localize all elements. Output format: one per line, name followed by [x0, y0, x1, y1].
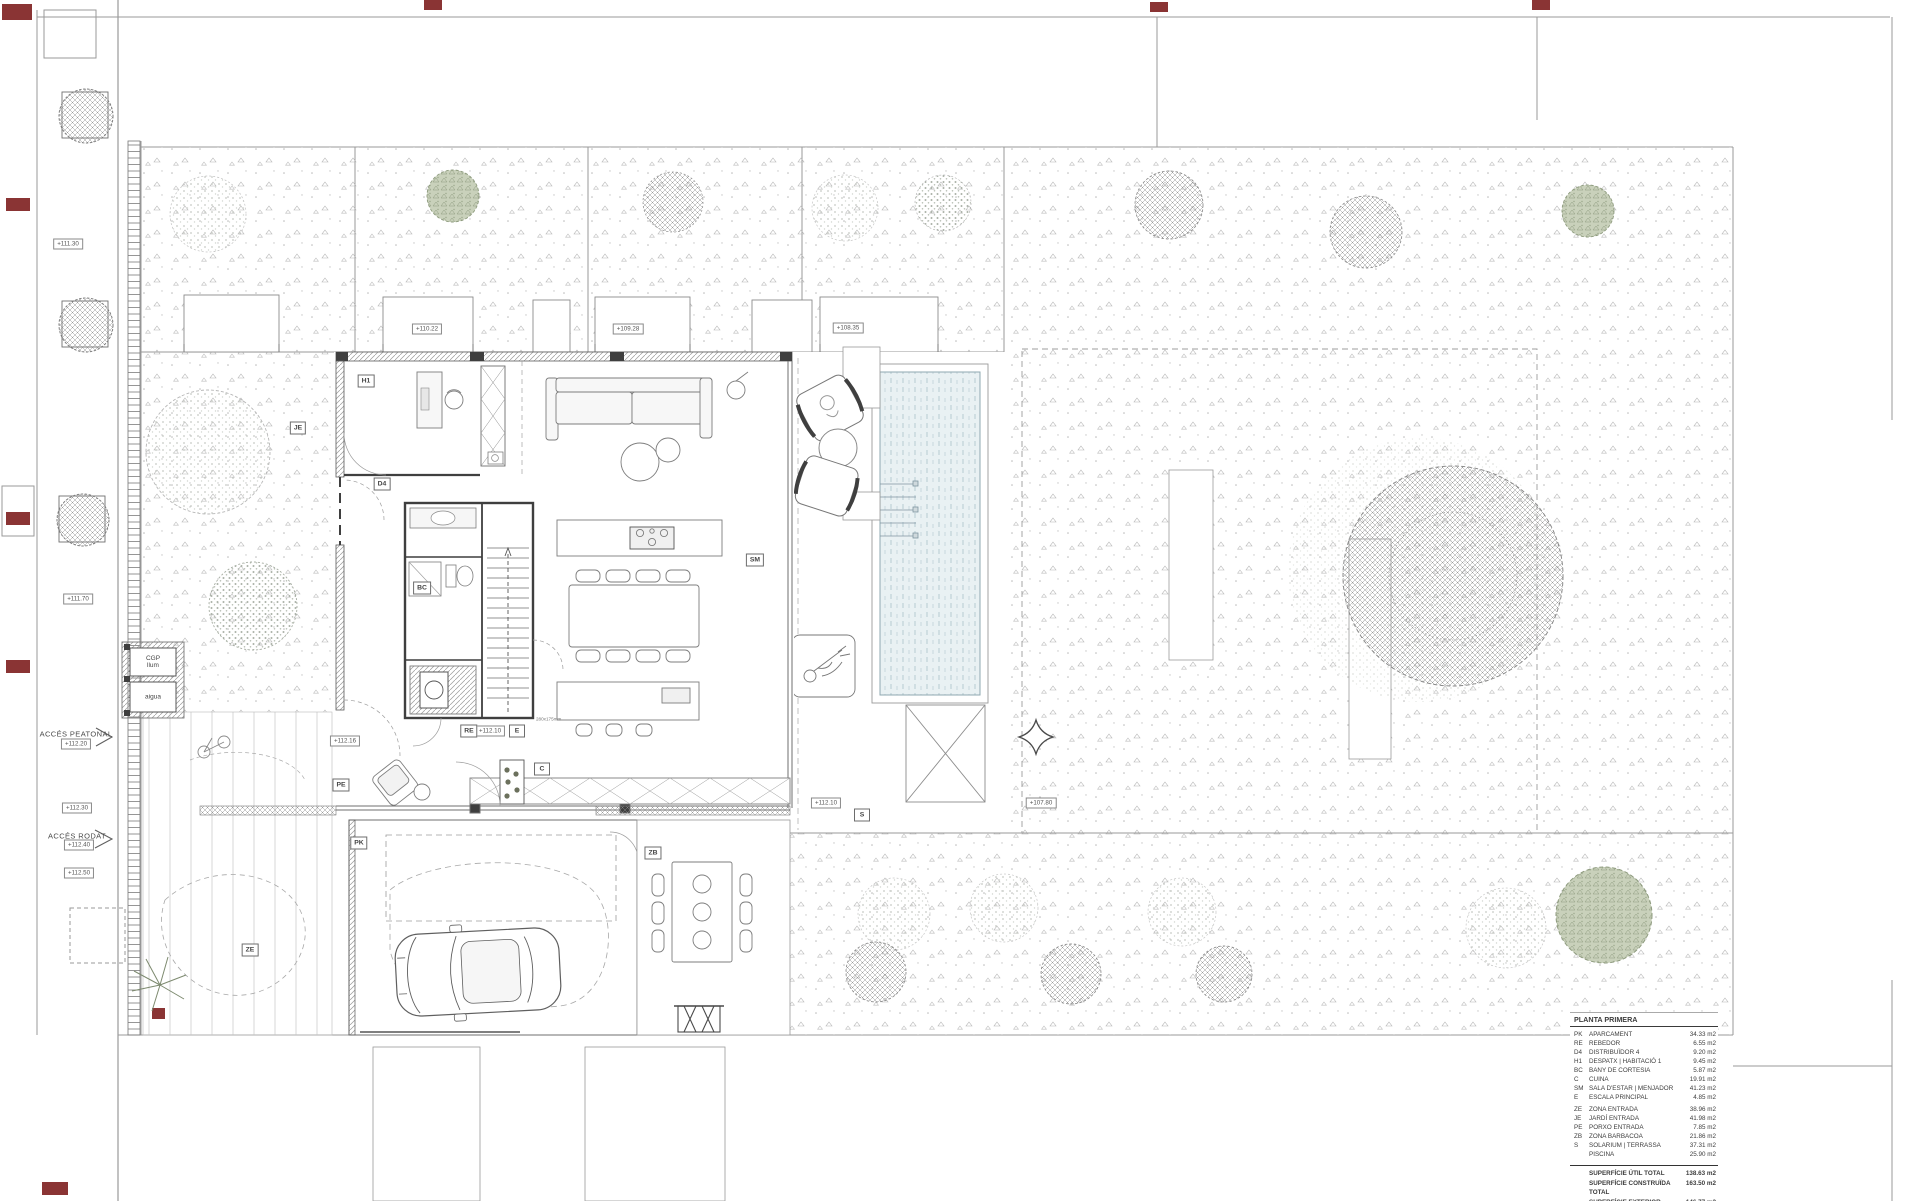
legend-row: JEJARDÍ ENTRADA41.98 m2: [1574, 1114, 1716, 1123]
legend-row: ZEZONA ENTRADA38.96 m2: [1574, 1105, 1716, 1114]
legend-group: PKAPARCAMENT34.33 m2REREBEDOR6.55 m2D4DI…: [1570, 1027, 1718, 1102]
access-arrows: [95, 728, 112, 848]
pool: [872, 364, 988, 703]
utility-boxes: [122, 642, 184, 718]
legend-row: H1DESPATX | HABITACIÓ 19.45 m2: [1574, 1057, 1716, 1066]
legend-row: BCBANY DE CORTESIA5.87 m2: [1574, 1066, 1716, 1075]
tree-icon: [170, 176, 246, 252]
tree-icon: [970, 874, 1038, 942]
pedestrian-access-arrow: [96, 728, 112, 746]
car-icon: [394, 920, 563, 1024]
road-access-arrow: [95, 830, 112, 848]
sunbather-icon: [792, 635, 855, 697]
garage: [349, 820, 638, 1035]
property-wall: [128, 141, 140, 1035]
legend-row: CCUINA19.91 m2: [1574, 1075, 1716, 1084]
barbecue-icon: [674, 1006, 724, 1032]
tree-icon: [1562, 185, 1614, 237]
tree-icon: [1466, 888, 1546, 968]
tree-icon: [1196, 946, 1252, 1002]
legend-row: REREBEDOR6.55 m2: [1574, 1039, 1716, 1048]
legend-row: SMSALA D'ESTAR | MENJADOR41.23 m2: [1574, 1084, 1716, 1093]
legend-row: SUPERFÍCIE ÚTIL TOTAL138.63 m2: [1574, 1169, 1716, 1179]
outdoor-dining: [637, 820, 790, 1035]
tree-icon: [915, 175, 971, 231]
legend-row: ZBZONA BARBACOA21.86 m2: [1574, 1132, 1716, 1141]
tree-icon: [858, 878, 930, 950]
legend-title: PLANTA PRIMERA: [1570, 1012, 1718, 1027]
tree-icon: [1041, 944, 1101, 1004]
legend-row: EESCALA PRINCIPAL4.85 m2: [1574, 1093, 1716, 1102]
legend-totals: SUPERFÍCIE ÚTIL TOTAL138.63 m2SUPERFÍCIE…: [1570, 1165, 1718, 1201]
street-tree-icon: [57, 89, 113, 546]
floor-plan-sheet: ACCÉS PEATONAL ACCÉS RODAT CGPllum aigua…: [0, 0, 1920, 1201]
legend-row: SUPERFÍCIE CONSTRUÏDA TOTAL163.50 m2: [1574, 1179, 1716, 1198]
tree-icon: [643, 172, 703, 232]
core-block: [405, 503, 533, 746]
legend-row: SSOLARIUM | TERRASSA37.31 m2: [1574, 1141, 1716, 1150]
area-legend: PLANTA PRIMERA PKAPARCAMENT34.33 m2REREB…: [1570, 1012, 1718, 1201]
tree-icon: [1135, 171, 1203, 239]
tree-icon: [1556, 867, 1652, 963]
tree-icon: [146, 390, 270, 514]
bush-icon: [209, 562, 297, 650]
tree-icon: [1148, 878, 1216, 946]
tree-icon: [812, 175, 878, 241]
legend-group: ZEZONA ENTRADA38.96 m2JEJARDÍ ENTRADA41.…: [1570, 1102, 1718, 1159]
tree-icon: [846, 942, 906, 1002]
legend-row: D4DISTRIBUÏDOR 49.20 m2: [1574, 1048, 1716, 1057]
legend-row: PISCINA25.90 m2: [1574, 1150, 1716, 1159]
tree-icon: [1330, 196, 1402, 268]
tree-icon: [427, 170, 479, 222]
legend-row: PKAPARCAMENT34.33 m2: [1574, 1030, 1716, 1039]
pergola-icon: [906, 705, 985, 802]
legend-row: PEPORXO ENTRADA7.85 m2: [1574, 1123, 1716, 1132]
desk-chair: [445, 391, 463, 409]
